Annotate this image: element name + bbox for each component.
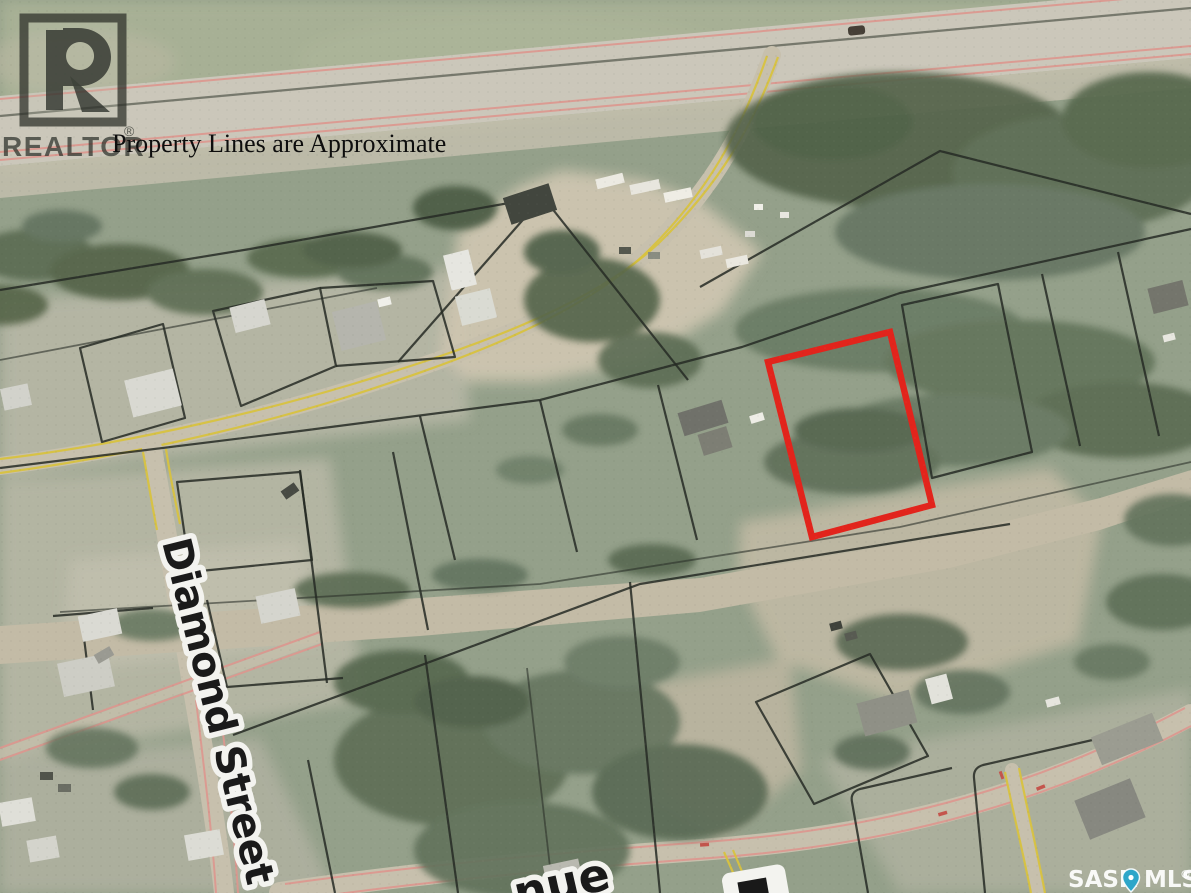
aerial-map: Diamond Street Diamond Street nue nue RE…: [0, 0, 1191, 893]
listing-photo: Diamond Street Diamond Street nue nue RE…: [0, 0, 1191, 893]
disclaimer-text: Property Lines are Approximate: [112, 129, 446, 158]
realtor-logo: [24, 18, 122, 122]
map-pin-dot: [1128, 875, 1133, 880]
realtor-r-stem: [46, 30, 63, 110]
mls-registered-symbol: ®: [1180, 868, 1191, 881]
sask-mls-watermark: SASK MLS ®: [1068, 867, 1191, 893]
